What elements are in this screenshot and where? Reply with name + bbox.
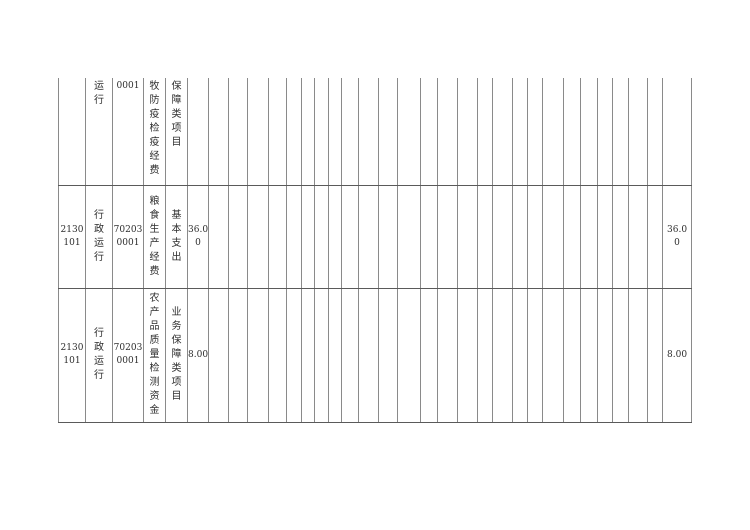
cell-empty bbox=[302, 185, 315, 288]
cell-empty bbox=[315, 288, 329, 422]
cell-empty bbox=[478, 185, 493, 288]
cell-empty bbox=[478, 78, 493, 185]
cell-empty bbox=[229, 288, 248, 422]
cell-empty bbox=[379, 78, 398, 185]
cell-empty bbox=[581, 288, 598, 422]
table-row: 运行 0001 牧防疫检疫经费 保障类项目 bbox=[59, 78, 692, 185]
cell-unit-name: 运行 bbox=[86, 78, 113, 185]
cell-amount: 36.0 0 bbox=[188, 185, 209, 288]
cell-empty bbox=[209, 78, 229, 185]
cell-empty bbox=[421, 288, 438, 422]
cell-amount: 8.00 bbox=[188, 288, 209, 422]
cell-empty bbox=[493, 185, 513, 288]
cell-empty bbox=[513, 78, 528, 185]
cell-empty bbox=[438, 78, 458, 185]
cell-empty bbox=[287, 78, 302, 185]
cell-empty bbox=[269, 288, 287, 422]
cell-empty bbox=[398, 78, 421, 185]
cell-empty bbox=[229, 78, 248, 185]
cell-empty bbox=[209, 185, 229, 288]
cell-empty bbox=[248, 288, 269, 422]
cell-empty bbox=[209, 288, 229, 422]
cell-empty bbox=[493, 288, 513, 422]
cell-project-code: 70203 0001 bbox=[113, 288, 144, 422]
cell-amount-total bbox=[663, 78, 692, 185]
cell-unit-name: 行政运行 bbox=[86, 288, 113, 422]
cell-budget-code: 2130 101 bbox=[59, 185, 86, 288]
cell-empty bbox=[248, 185, 269, 288]
cell-empty bbox=[421, 185, 438, 288]
cell-empty bbox=[528, 185, 543, 288]
cell-empty bbox=[543, 78, 564, 185]
cell-empty bbox=[513, 288, 528, 422]
cell-empty bbox=[613, 288, 629, 422]
cell-empty bbox=[613, 78, 629, 185]
cell-empty bbox=[329, 288, 342, 422]
cell-empty bbox=[648, 185, 663, 288]
cell-empty bbox=[302, 288, 315, 422]
cell-empty bbox=[342, 288, 359, 422]
cell-expense-category: 保障类项目 bbox=[166, 78, 188, 185]
cell-project-code: 70203 0001 bbox=[113, 185, 144, 288]
budget-table: 运行 0001 牧防疫检疫经费 保障类项目 2130 101 行政运行 7020… bbox=[58, 78, 692, 423]
cell-empty bbox=[458, 185, 478, 288]
cell-empty bbox=[269, 78, 287, 185]
cell-project-name: 粮食生产经费 bbox=[144, 185, 166, 288]
cell-empty bbox=[248, 78, 269, 185]
cell-empty bbox=[379, 185, 398, 288]
cell-unit-name: 行政运行 bbox=[86, 185, 113, 288]
cell-empty bbox=[379, 288, 398, 422]
cell-expense-category: 基本支出 bbox=[166, 185, 188, 288]
cell-empty bbox=[329, 78, 342, 185]
cell-empty bbox=[315, 78, 329, 185]
cell-empty bbox=[513, 185, 528, 288]
cell-empty bbox=[421, 78, 438, 185]
cell-empty bbox=[302, 78, 315, 185]
cell-empty bbox=[398, 288, 421, 422]
cell-amount-total: 8.00 bbox=[663, 288, 692, 422]
cell-empty bbox=[329, 185, 342, 288]
cell-project-name: 牧防疫检疫经费 bbox=[144, 78, 166, 185]
cell-empty bbox=[315, 185, 329, 288]
cell-empty bbox=[438, 288, 458, 422]
cell-empty bbox=[359, 185, 379, 288]
cell-empty bbox=[458, 78, 478, 185]
cell-empty bbox=[613, 185, 629, 288]
cell-empty bbox=[528, 288, 543, 422]
cell-empty bbox=[598, 288, 613, 422]
cell-empty bbox=[598, 78, 613, 185]
cell-amount-total: 36.0 0 bbox=[663, 185, 692, 288]
cell-empty bbox=[458, 288, 478, 422]
cell-empty bbox=[287, 288, 302, 422]
cell-empty bbox=[359, 78, 379, 185]
cell-budget-code bbox=[59, 78, 86, 185]
cell-empty bbox=[398, 185, 421, 288]
cell-empty bbox=[543, 185, 564, 288]
cell-empty bbox=[629, 78, 648, 185]
cell-empty bbox=[287, 185, 302, 288]
cell-empty bbox=[229, 185, 248, 288]
cell-empty bbox=[598, 185, 613, 288]
cell-empty bbox=[269, 185, 287, 288]
cell-empty bbox=[564, 288, 581, 422]
cell-empty bbox=[528, 78, 543, 185]
cell-empty bbox=[629, 185, 648, 288]
cell-empty bbox=[342, 185, 359, 288]
cell-empty bbox=[581, 78, 598, 185]
cell-empty bbox=[438, 185, 458, 288]
table-row: 2130 101 行政运行 70203 0001 农产品质量检测资金 业务保障类… bbox=[59, 288, 692, 422]
cell-empty bbox=[342, 78, 359, 185]
cell-empty bbox=[648, 288, 663, 422]
cell-empty bbox=[581, 185, 598, 288]
cell-empty bbox=[478, 288, 493, 422]
cell-project-name: 农产品质量检测资金 bbox=[144, 288, 166, 422]
cell-empty bbox=[543, 288, 564, 422]
cell-empty bbox=[564, 185, 581, 288]
cell-empty bbox=[493, 78, 513, 185]
table-row: 2130 101 行政运行 70203 0001 粮食生产经费 基本支出 36.… bbox=[59, 185, 692, 288]
cell-empty bbox=[629, 288, 648, 422]
cell-empty bbox=[359, 288, 379, 422]
cell-empty bbox=[564, 78, 581, 185]
cell-budget-code: 2130 101 bbox=[59, 288, 86, 422]
cell-empty bbox=[648, 78, 663, 185]
cell-expense-category: 业务保障类项目 bbox=[166, 288, 188, 422]
cell-project-code: 0001 bbox=[113, 78, 144, 185]
cell-amount bbox=[188, 78, 209, 185]
